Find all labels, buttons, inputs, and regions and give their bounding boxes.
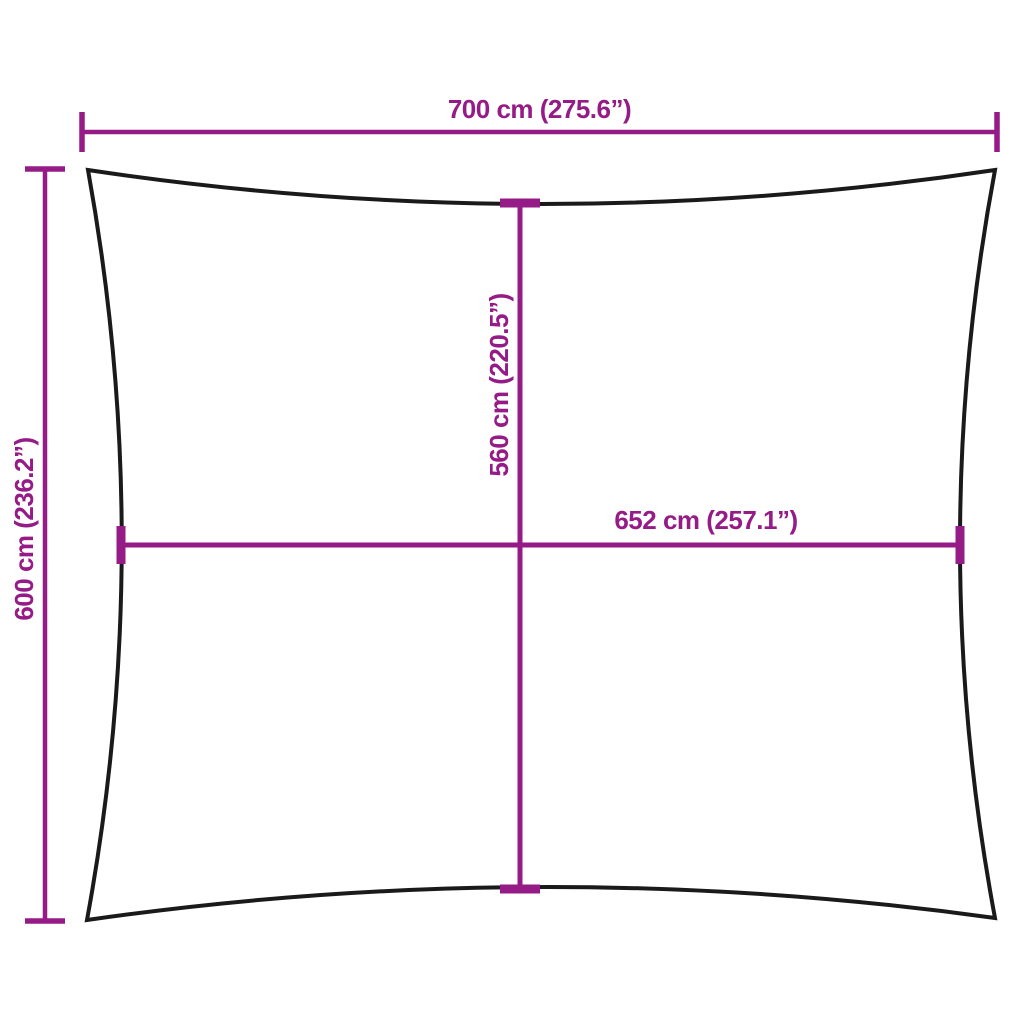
top-width-label: 700 cm (275.6”)	[82, 95, 997, 123]
center-width-label: 652 cm (257.1”)	[506, 506, 906, 534]
dimension-diagram: 700 cm (275.6”) 600 cm (236.2”) 560 cm (…	[0, 0, 1024, 1024]
left-height-label: 600 cm (236.2”)	[10, 329, 38, 729]
